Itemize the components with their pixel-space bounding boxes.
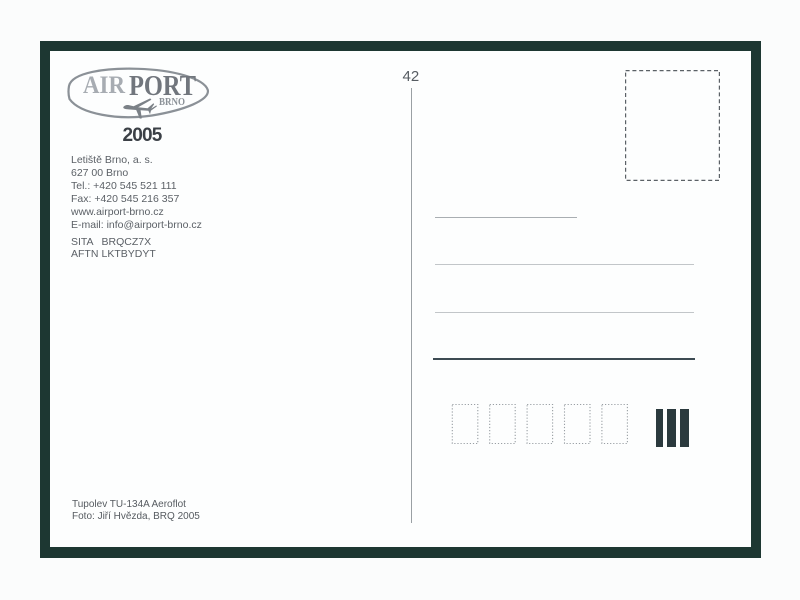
svg-text:AIR: AIR [83, 72, 126, 99]
svg-text:BRNO: BRNO [159, 96, 185, 108]
